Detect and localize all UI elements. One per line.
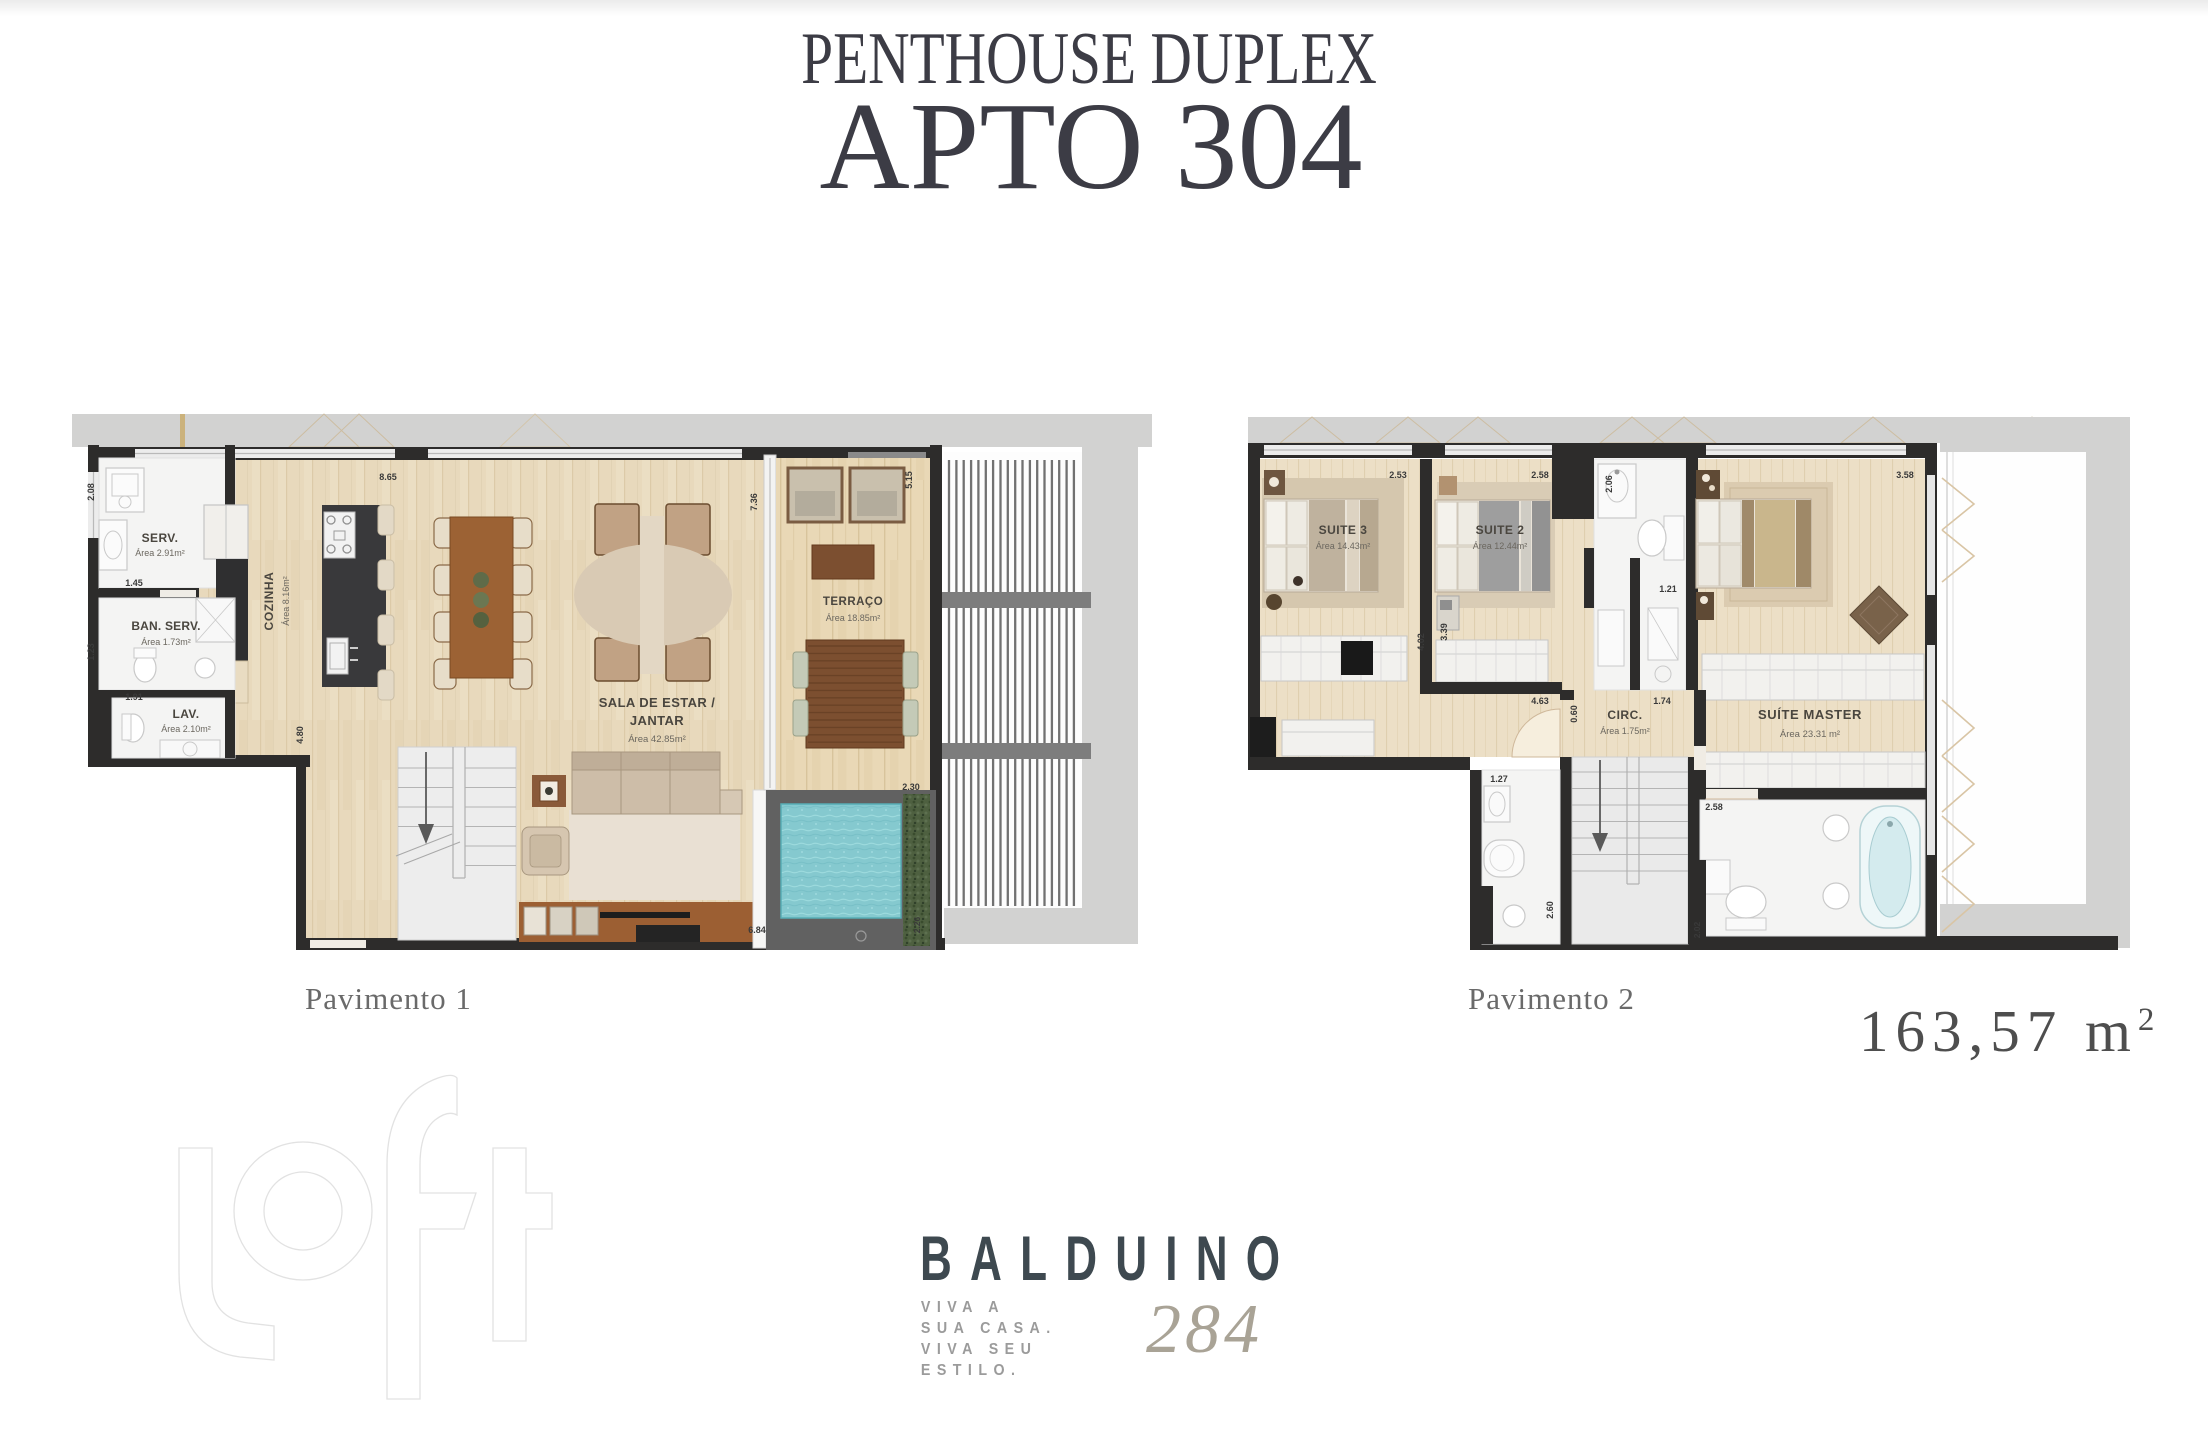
svg-text:VIVA SEU: VIVA SEU bbox=[921, 1342, 1037, 1359]
svg-text:3.58: 3.58 bbox=[1896, 470, 1914, 480]
svg-text:0.60: 0.60 bbox=[1569, 705, 1579, 723]
svg-text:2.58: 2.58 bbox=[1531, 470, 1549, 480]
svg-text:4.63: 4.63 bbox=[1531, 696, 1549, 706]
svg-text:Área 8.16m²: Área 8.16m² bbox=[281, 576, 291, 626]
svg-text:1.74: 1.74 bbox=[1653, 696, 1671, 706]
svg-text:Área 12.44m²: Área 12.44m² bbox=[1473, 541, 1528, 551]
svg-text:Área 1.75m²: Área 1.75m² bbox=[1600, 726, 1650, 736]
svg-text:2.08: 2.08 bbox=[86, 483, 96, 501]
svg-text:SUÍTE MASTER: SUÍTE MASTER bbox=[1758, 707, 1862, 722]
svg-text:1.27: 1.27 bbox=[1490, 774, 1508, 784]
svg-text:JANTAR: JANTAR bbox=[630, 713, 684, 728]
svg-text:SUITE 2: SUITE 2 bbox=[1476, 523, 1525, 537]
svg-text:COZINHA: COZINHA bbox=[262, 572, 276, 631]
svg-text:2.26: 2.26 bbox=[912, 916, 922, 933]
svg-text:2.53: 2.53 bbox=[1389, 470, 1407, 480]
svg-text:Área 18.85m²: Área 18.85m² bbox=[826, 613, 881, 623]
svg-text:1.45: 1.45 bbox=[125, 578, 143, 588]
svg-text:BALDUINO: BALDUINO bbox=[920, 1223, 1298, 1294]
svg-text:4.02: 4.02 bbox=[1416, 633, 1426, 651]
svg-text:2.02: 2.02 bbox=[1692, 921, 1702, 938]
svg-text:LAV.: LAV. bbox=[173, 707, 200, 721]
svg-text:163,57 m2: 163,57 m2 bbox=[1859, 998, 2161, 1064]
svg-text:APTO 304: APTO 304 bbox=[820, 78, 1363, 216]
svg-text:SERV.: SERV. bbox=[142, 531, 179, 545]
svg-text:2.30: 2.30 bbox=[902, 782, 920, 792]
svg-text:Pavimento 1: Pavimento 1 bbox=[305, 981, 472, 1016]
svg-text:1.21: 1.21 bbox=[1659, 584, 1677, 594]
svg-text:TERRAÇO: TERRAÇO bbox=[823, 596, 883, 608]
svg-text:CIRC.: CIRC. bbox=[1607, 708, 1642, 722]
svg-text:2.06: 2.06 bbox=[1604, 475, 1614, 493]
svg-text:2.60: 2.60 bbox=[1545, 901, 1555, 919]
svg-text:7.36: 7.36 bbox=[749, 493, 759, 511]
svg-text:Pavimento 2: Pavimento 2 bbox=[1468, 981, 1635, 1016]
svg-text:Área 23.31 m²: Área 23.31 m² bbox=[1780, 729, 1840, 740]
svg-text:6.84: 6.84 bbox=[748, 925, 766, 935]
svg-text:Área 1.73m²: Área 1.73m² bbox=[141, 637, 191, 647]
svg-text:SALA DE ESTAR /: SALA DE ESTAR / bbox=[599, 695, 716, 710]
svg-text:4.80: 4.80 bbox=[295, 726, 305, 744]
svg-text:SUITE 3: SUITE 3 bbox=[1319, 523, 1368, 537]
svg-text:1.91: 1.91 bbox=[125, 692, 143, 702]
svg-text:284: 284 bbox=[1146, 1291, 1263, 1368]
svg-text:ESTILO.: ESTILO. bbox=[921, 1363, 1021, 1380]
svg-text:Área 2.10m²: Área 2.10m² bbox=[161, 724, 211, 734]
svg-text:2.58: 2.58 bbox=[1705, 802, 1723, 812]
svg-text:1.23: 1.23 bbox=[86, 643, 96, 661]
svg-text:BAN. SERV.: BAN. SERV. bbox=[131, 619, 200, 633]
svg-text:Área 2.91m²: Área 2.91m² bbox=[135, 548, 185, 558]
svg-text:Área 42.85m²: Área 42.85m² bbox=[628, 734, 686, 745]
svg-text:VIVA A: VIVA A bbox=[921, 1300, 1005, 1317]
svg-text:5.15: 5.15 bbox=[904, 471, 914, 489]
svg-text:8.65: 8.65 bbox=[379, 472, 397, 482]
svg-text:3.39: 3.39 bbox=[1439, 623, 1449, 641]
svg-text:Área 14.43m²: Área 14.43m² bbox=[1316, 541, 1371, 551]
svg-text:SUA CASA.: SUA CASA. bbox=[921, 1321, 1057, 1338]
